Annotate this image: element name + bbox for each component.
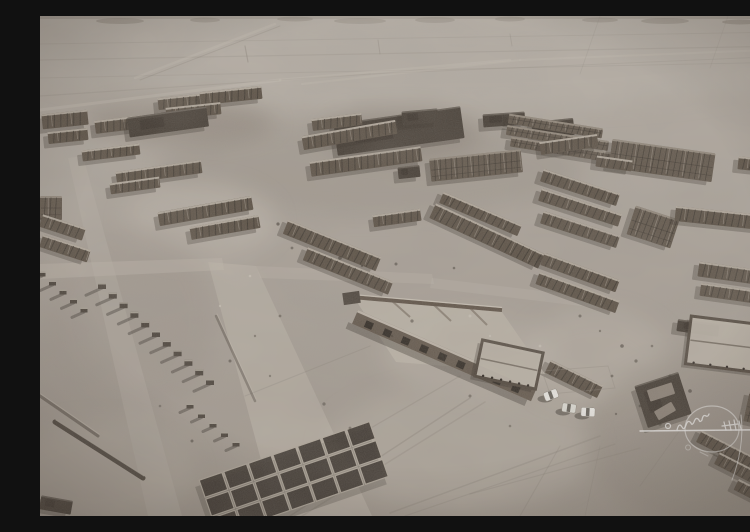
aerial-photo-canvas <box>40 16 750 516</box>
vignette-overlay <box>40 16 750 516</box>
aerial-photo <box>40 16 750 516</box>
photo-scene <box>40 16 750 516</box>
